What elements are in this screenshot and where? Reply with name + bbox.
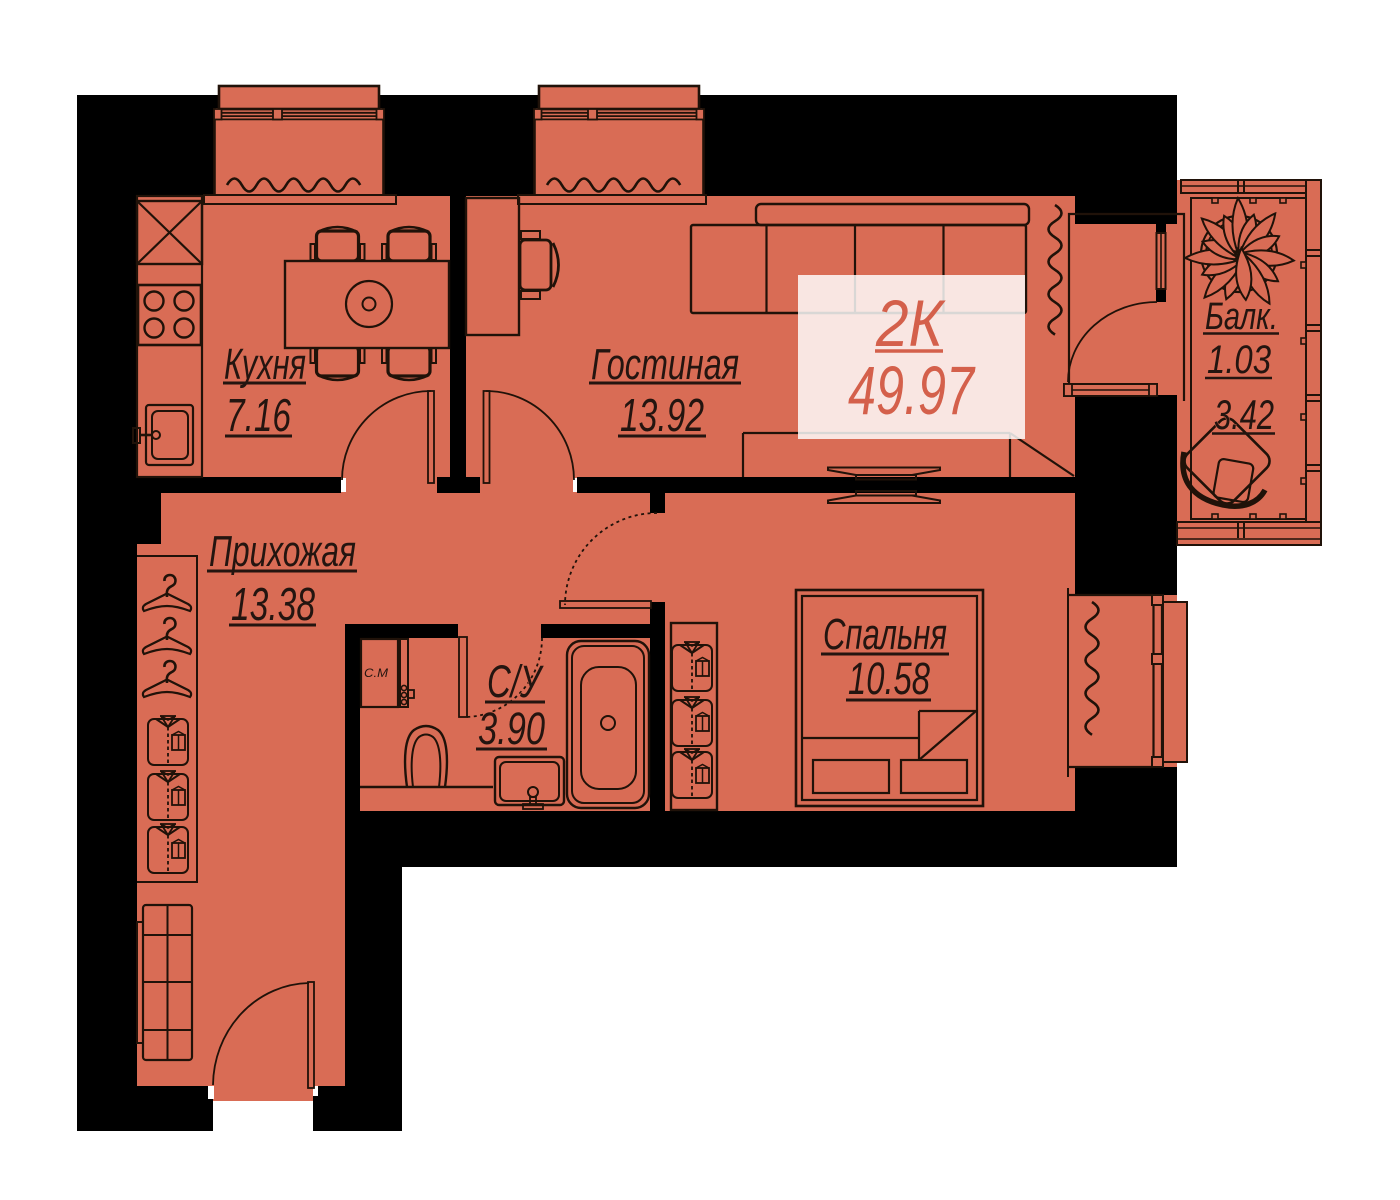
svg-text:Спальня: Спальня (823, 610, 947, 659)
svg-text:13.92: 13.92 (620, 389, 704, 441)
svg-text:С/У: С/У (487, 656, 544, 707)
svg-text:Прихожая: Прихожая (209, 527, 356, 576)
svg-text:2К: 2К (875, 286, 946, 360)
svg-text:10.58: 10.58 (848, 653, 930, 704)
svg-text:3.90: 3.90 (478, 703, 545, 754)
svg-text:3.42: 3.42 (1214, 391, 1274, 438)
svg-text:7.16: 7.16 (226, 389, 291, 441)
svg-text:49.97: 49.97 (848, 352, 976, 429)
svg-text:13.38: 13.38 (231, 578, 315, 630)
svg-text:С.М: С.М (364, 666, 388, 680)
svg-text:1.03: 1.03 (1207, 338, 1271, 382)
svg-text:Балк.: Балк. (1205, 296, 1278, 338)
